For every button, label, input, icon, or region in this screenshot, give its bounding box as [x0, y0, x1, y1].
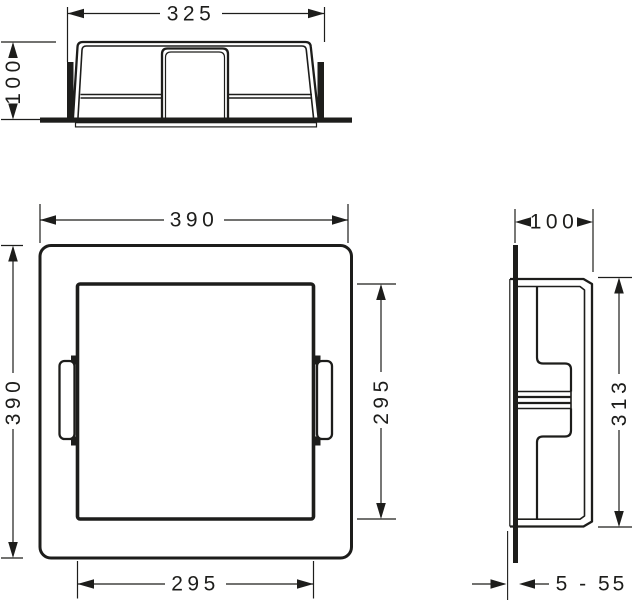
housing-inner-wall — [78, 46, 314, 118]
dim-label-side-depth: 100 — [530, 211, 579, 234]
dimension-side-depth: 100 — [515, 209, 593, 272]
arrowhead-up — [614, 278, 624, 294]
dimension-side-height: 313 — [598, 278, 632, 528]
arrowhead-left — [519, 579, 535, 589]
arrowhead-left — [40, 215, 56, 225]
center-clip-outline — [162, 49, 228, 118]
dimension-inner-height: 295 — [357, 284, 396, 519]
dim-label-front-height: 390 — [2, 377, 25, 426]
flange-underside — [76, 123, 317, 127]
center-clip-band — [517, 392, 571, 409]
center-clip-inner — [166, 52, 225, 118]
mounting-clip-right — [314, 356, 333, 446]
technical-drawing-canvas: 325 100 — [0, 0, 633, 600]
arrowhead-left — [68, 9, 85, 19]
dimension-top-width: 325 — [68, 3, 325, 63]
arrowhead-down — [614, 511, 624, 527]
niche-housing-side — [510, 279, 592, 527]
arrowhead-up — [376, 284, 386, 300]
center-clip-band-inner — [517, 397, 571, 403]
cavity-profile-top — [537, 287, 571, 392]
side-clip-right — [318, 62, 325, 118]
arrowhead-right — [577, 217, 593, 227]
dimension-tile-range: 5 - 55 — [472, 573, 627, 596]
trim-frame-outline — [40, 246, 352, 559]
niche-housing-top — [40, 42, 352, 127]
arrowhead-down — [8, 542, 18, 558]
dim-label-top-depth: 100 — [2, 56, 25, 105]
front-flange-edge — [40, 118, 352, 123]
dim-label-inner-height: 295 — [370, 376, 393, 425]
dimension-front-width: 390 — [40, 204, 348, 243]
dim-label-inner-width: 295 — [171, 573, 220, 596]
front-view: 390 390 — [1, 204, 396, 599]
niche-opening — [78, 284, 314, 519]
housing-outline — [73, 42, 319, 118]
arrowhead-right — [491, 579, 507, 589]
cavity-profile-bottom — [537, 409, 571, 520]
arrowhead-left — [515, 217, 531, 227]
arrowhead-down — [8, 104, 18, 120]
dimension-inner-width: 295 — [78, 561, 314, 599]
arrowhead-right — [332, 215, 348, 225]
housing-front-edge — [81, 95, 313, 99]
top-view: 325 100 — [1, 3, 352, 127]
technical-drawing: 325 100 — [0, 0, 633, 600]
dim-label-front-width: 390 — [170, 209, 219, 232]
arrowhead-up — [8, 42, 18, 58]
arrowhead-right — [308, 9, 325, 19]
side-view: 100 313 5 - 5 — [472, 209, 632, 600]
mounting-clip-left — [60, 356, 79, 446]
dim-label-side-height: 313 — [608, 378, 631, 427]
arrowhead-right — [297, 579, 314, 589]
dim-label-top-width: 325 — [167, 3, 216, 26]
clip-body — [60, 361, 75, 439]
arrowhead-up — [8, 246, 18, 262]
side-clip-left — [67, 62, 74, 118]
arrowhead-down — [376, 503, 386, 519]
dimension-top-depth: 100 — [1, 42, 56, 120]
dim-label-tile-range: 5 - 55 — [556, 573, 628, 596]
arrowhead-left — [78, 579, 95, 589]
clip-body — [317, 361, 332, 439]
dimension-front-height: 390 — [1, 246, 25, 559]
